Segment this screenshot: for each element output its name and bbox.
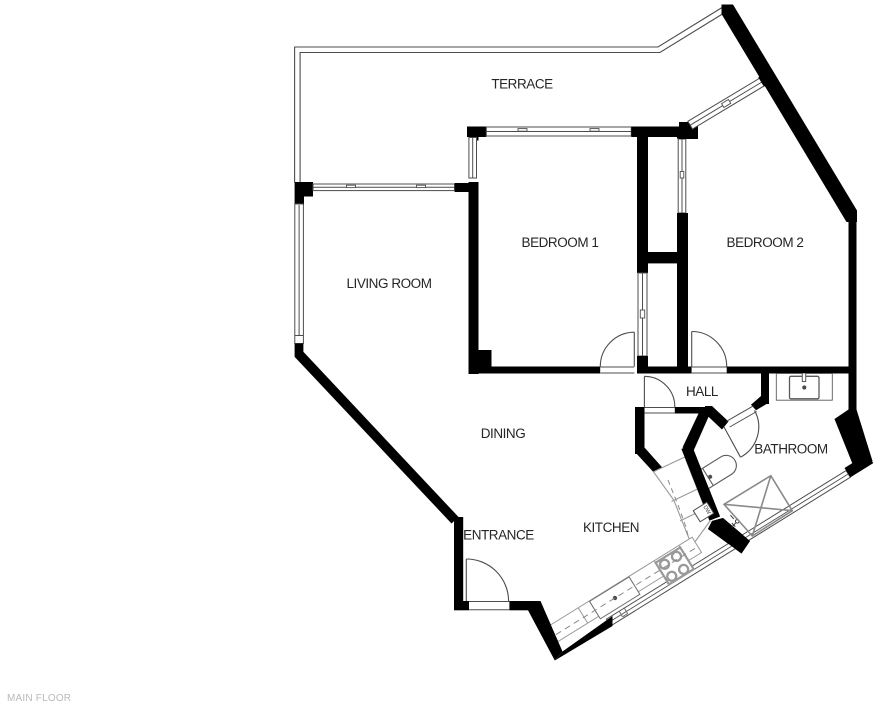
svg-text:BEDROOM 1: BEDROOM 1: [522, 235, 599, 250]
svg-text:BEDROOM 2: BEDROOM 2: [727, 235, 804, 250]
svg-text:LIVING ROOM: LIVING ROOM: [346, 276, 431, 291]
svg-text:BATHROOM: BATHROOM: [754, 442, 828, 457]
svg-text:KITCHEN: KITCHEN: [583, 520, 639, 535]
svg-text:TERRACE: TERRACE: [491, 77, 553, 92]
svg-text:DINING: DINING: [481, 426, 526, 441]
svg-text:HALL: HALL: [686, 384, 719, 399]
svg-text:MAIN FLOOR: MAIN FLOOR: [7, 693, 71, 704]
svg-text:ENTRANCE: ENTRANCE: [463, 528, 534, 543]
